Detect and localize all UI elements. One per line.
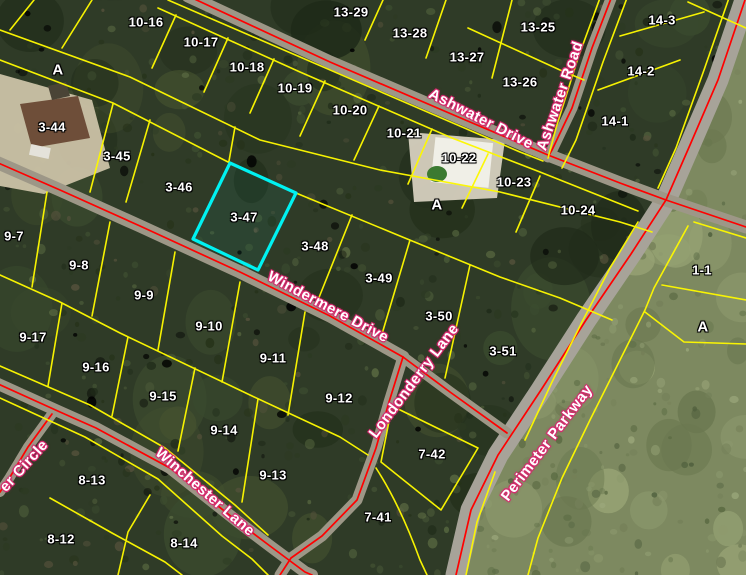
map-canvas: 10-1510-1610-1710-1810-1910-2010-2110-22… bbox=[0, 0, 746, 575]
parcel-label-9-11: 9-11 bbox=[260, 351, 287, 366]
parcel-label-9-9: 9-9 bbox=[134, 288, 154, 303]
parcel-label-13-25: 13-25 bbox=[521, 20, 556, 35]
parcel-label-14-1: 14-1 bbox=[601, 114, 628, 129]
block-label-a: A bbox=[52, 62, 63, 79]
block-label-a: A bbox=[431, 197, 442, 214]
parcel-label-10-19: 10-19 bbox=[278, 81, 313, 96]
block-label-a: A bbox=[697, 319, 708, 336]
parcel-label-10-17: 10-17 bbox=[184, 35, 219, 50]
parcel-label-9-14: 9-14 bbox=[210, 423, 237, 438]
parcel-label-8-13: 8-13 bbox=[78, 473, 105, 488]
parcel-label-10-22: 10-22 bbox=[442, 151, 477, 166]
parcel-label-3-45: 3-45 bbox=[103, 149, 130, 164]
parcel-label-3-51: 3-51 bbox=[489, 344, 516, 359]
parcel-label-3-49: 3-49 bbox=[365, 271, 392, 286]
parcel-label-9-12: 9-12 bbox=[325, 391, 352, 406]
parcel-label-10-18: 10-18 bbox=[230, 60, 265, 75]
parcel-label-9-16: 9-16 bbox=[82, 360, 109, 375]
homesite-10-22 bbox=[408, 132, 505, 202]
parcel-label-7-42: 7-42 bbox=[418, 447, 445, 462]
parcel-label-10-16: 10-16 bbox=[129, 15, 164, 30]
parcel-label-1-1: 1-1 bbox=[692, 263, 712, 278]
parcel-label-9-17: 9-17 bbox=[19, 330, 46, 345]
parcel-label-7-41: 7-41 bbox=[364, 510, 391, 525]
parcel-label-3-48: 3-48 bbox=[301, 239, 328, 254]
parcel-label-13-27: 13-27 bbox=[450, 50, 485, 65]
parcel-label-9-7: 9-7 bbox=[4, 229, 24, 244]
parcel-label-10-23: 10-23 bbox=[497, 175, 532, 190]
parcel-label-10-24: 10-24 bbox=[561, 203, 596, 218]
parcel-label-9-8: 9-8 bbox=[69, 258, 89, 273]
parcel-label-10-20: 10-20 bbox=[333, 103, 368, 118]
parcel-label-3-44: 3-44 bbox=[38, 120, 65, 135]
parcel-label-9-10: 9-10 bbox=[195, 319, 222, 334]
parcel-label-13-29: 13-29 bbox=[334, 5, 369, 20]
parcel-label-10-15: 10-15 bbox=[88, 0, 123, 2]
parcel-label-3-47: 3-47 bbox=[230, 210, 257, 225]
parcel-label-3-46: 3-46 bbox=[165, 180, 192, 195]
parcel-label-9-15: 9-15 bbox=[149, 389, 176, 404]
parcel-label-10-21: 10-21 bbox=[387, 126, 422, 141]
parcel-label-8-14: 8-14 bbox=[170, 536, 197, 551]
parcel-label-14-2: 14-2 bbox=[627, 64, 654, 79]
aerial-imagery bbox=[0, 0, 746, 575]
parcel-label-9-13: 9-13 bbox=[259, 468, 286, 483]
parcel-label-13-28: 13-28 bbox=[393, 26, 428, 41]
parcel-label-13-26: 13-26 bbox=[503, 75, 538, 90]
parcel-label-8-12: 8-12 bbox=[47, 532, 74, 547]
parcel-label-14-3: 14-3 bbox=[648, 13, 675, 28]
